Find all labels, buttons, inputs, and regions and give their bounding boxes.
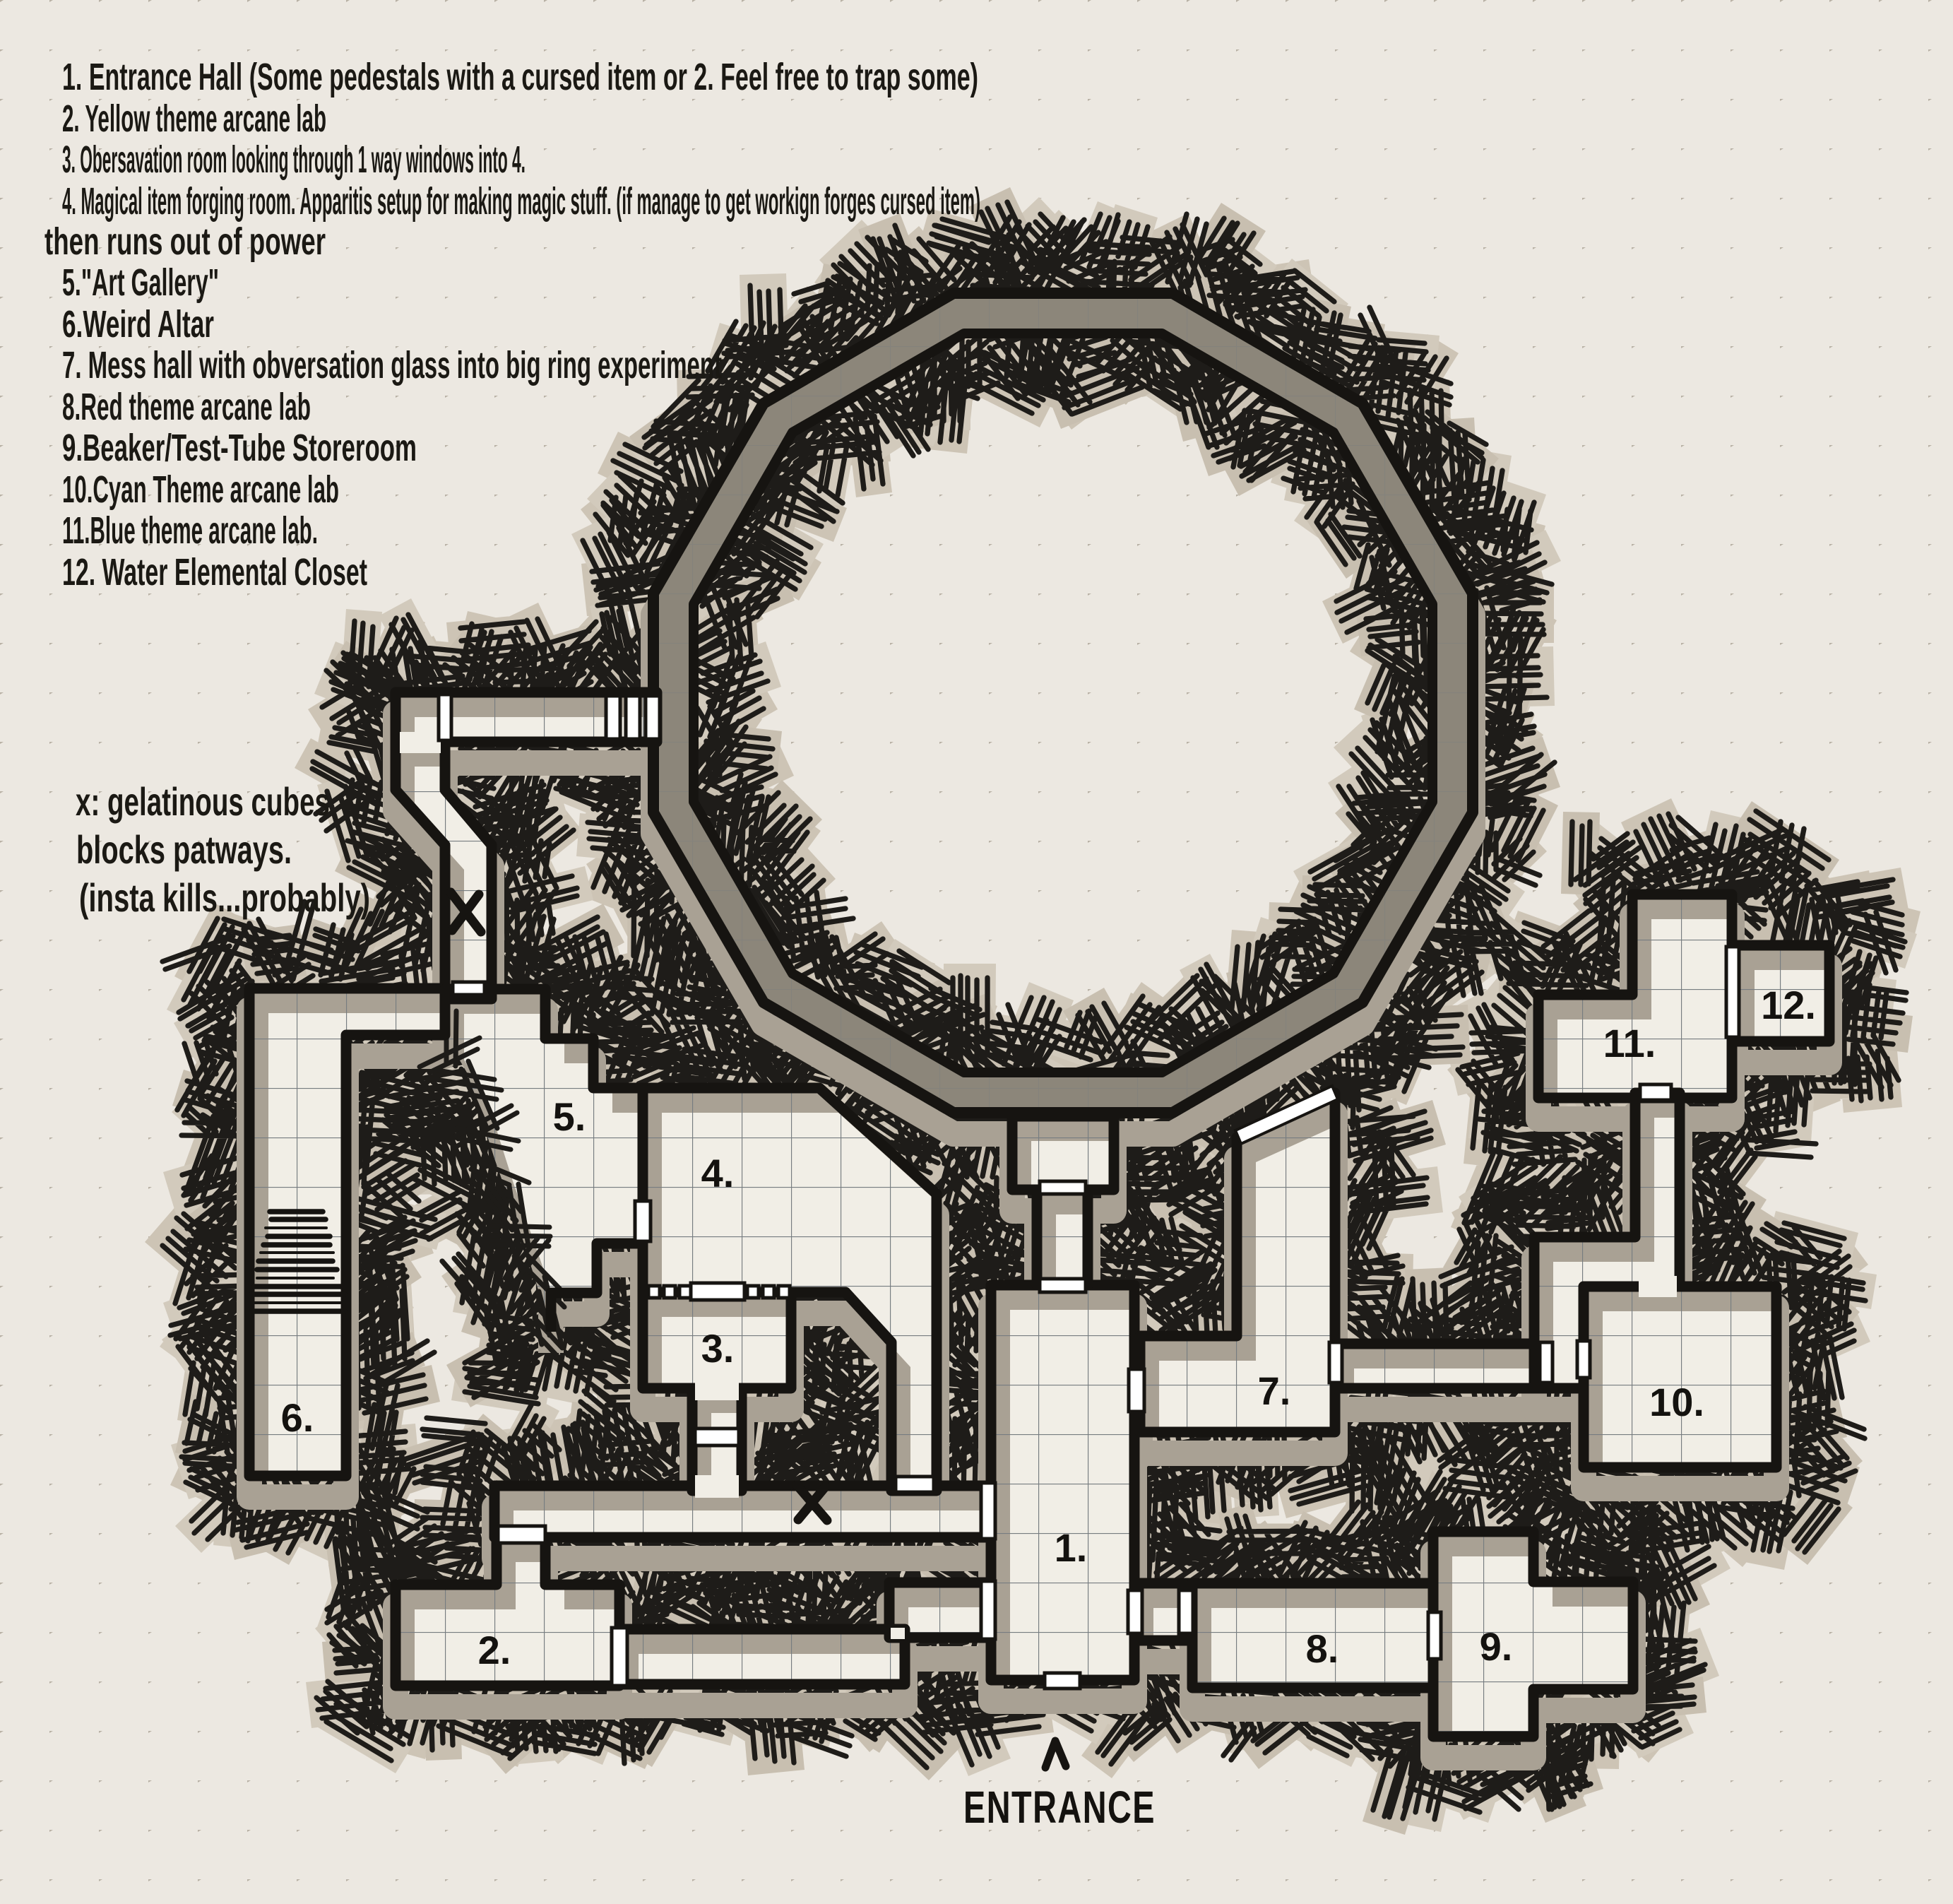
svg-text:ENTRANCE: ENTRANCE xyxy=(963,1782,1156,1833)
svg-text:7.: 7. xyxy=(1258,1368,1291,1413)
svg-text:(insta kills...probably): (insta kills...probably) xyxy=(79,875,370,920)
svg-text:6.Weird Altar: 6.Weird Altar xyxy=(62,303,214,345)
svg-text:1.: 1. xyxy=(1055,1525,1088,1570)
svg-text:1. Entrance Hall (Some pedesta: 1. Entrance Hall (Some pedestals with a … xyxy=(62,56,978,98)
svg-text:9.: 9. xyxy=(1480,1624,1513,1669)
svg-text:10.: 10. xyxy=(1649,1380,1704,1424)
svg-text:4. Magical item forging room.: 4. Magical item forging room. Apparitis … xyxy=(62,180,980,223)
svg-text:8.: 8. xyxy=(1306,1626,1339,1671)
svg-text:blocks patways.: blocks patways. xyxy=(76,827,292,872)
svg-text:11.: 11. xyxy=(1603,1021,1656,1065)
svg-text:7. Mess hall with obversation: 7. Mess hall with obversation glass into… xyxy=(62,344,722,386)
svg-text:12. Water Elemental Closet: 12. Water Elemental Closet xyxy=(62,551,367,593)
svg-text:3. Obersavation room looking t: 3. Obersavation room looking through 1 w… xyxy=(62,138,526,181)
svg-text:5."Art Gallery": 5."Art Gallery" xyxy=(62,261,219,304)
svg-text:4.: 4. xyxy=(701,1151,735,1195)
svg-text:9.Beaker/Test-Tube Storeroom: 9.Beaker/Test-Tube Storeroom xyxy=(62,427,417,469)
svg-text:11.Blue theme arcane lab.: 11.Blue theme arcane lab. xyxy=(62,509,318,552)
svg-text:3.: 3. xyxy=(701,1326,735,1371)
svg-text:then runs out of power: then runs out of power xyxy=(44,220,326,263)
svg-text:12.: 12. xyxy=(1761,983,1816,1027)
svg-text:8.Red theme arcane lab: 8.Red theme arcane lab xyxy=(62,386,311,428)
svg-text:6.: 6. xyxy=(281,1395,314,1440)
svg-text:x: gelatinous cubes: x: gelatinous cubes xyxy=(76,779,330,824)
svg-text:2.: 2. xyxy=(478,1628,511,1672)
svg-text:5.: 5. xyxy=(553,1094,586,1139)
svg-text:2. Yellow theme arcane lab: 2. Yellow theme arcane lab xyxy=(62,97,326,140)
svg-text:10.Cyan Theme arcane lab: 10.Cyan Theme arcane lab xyxy=(62,468,339,511)
